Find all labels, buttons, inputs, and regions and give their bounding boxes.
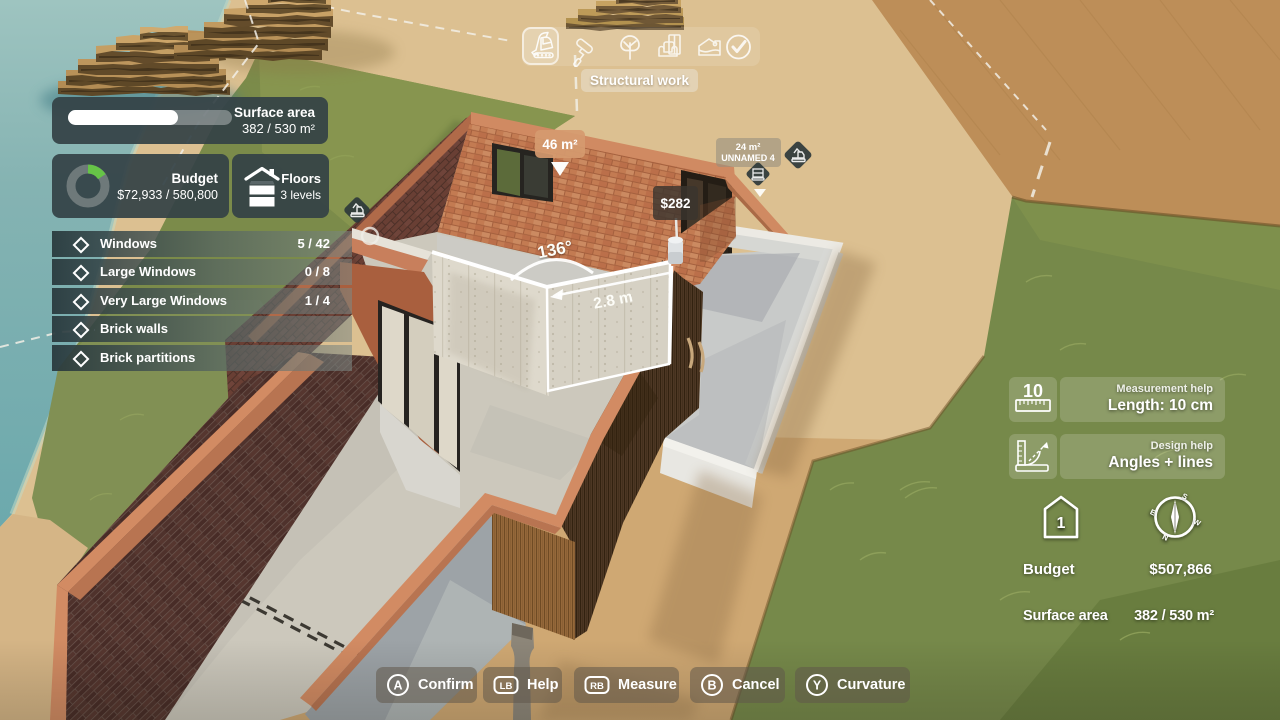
svg-text:B: B bbox=[707, 679, 716, 693]
svg-text:46 m²: 46 m² bbox=[542, 137, 578, 152]
svg-text:1: 1 bbox=[1057, 515, 1066, 532]
svg-text:RB: RB bbox=[590, 681, 604, 692]
svg-text:Y: Y bbox=[813, 679, 822, 693]
svg-text:UNNAMED 4: UNNAMED 4 bbox=[721, 153, 775, 163]
svg-text:$282: $282 bbox=[660, 196, 690, 211]
svg-text:LB: LB bbox=[500, 681, 513, 692]
svg-text:10: 10 bbox=[1023, 381, 1043, 401]
svg-text:N: N bbox=[1161, 532, 1170, 542]
svg-text:24 m²: 24 m² bbox=[736, 142, 761, 153]
svg-text:S: S bbox=[1181, 491, 1189, 501]
svg-text:A: A bbox=[393, 679, 402, 693]
